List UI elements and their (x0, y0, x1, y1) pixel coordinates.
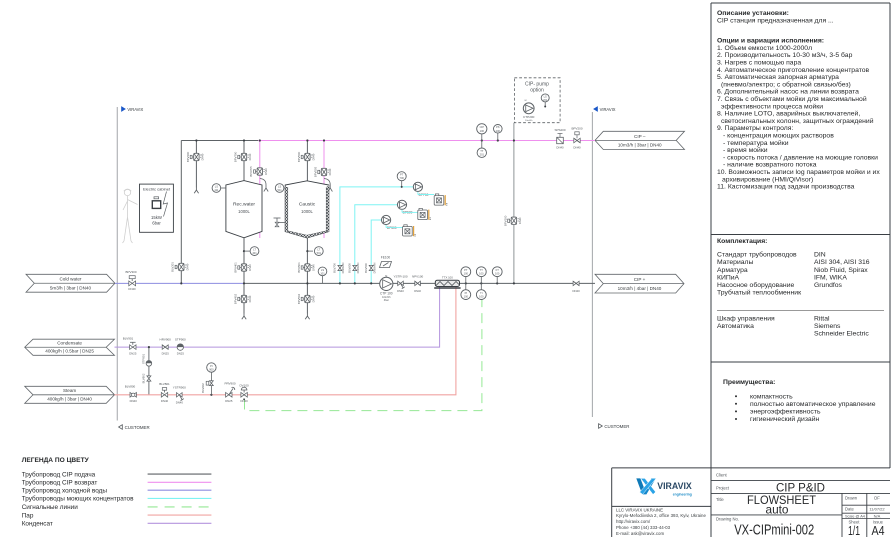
svg-text:BPV300: BPV300 (125, 270, 136, 274)
svg-text:TI: TI (480, 291, 483, 295)
svg-text:DN40: DN40 (312, 264, 316, 271)
svg-text:DN25: DN25 (129, 351, 137, 355)
svg-text:PS: PS (496, 125, 500, 129)
svg-text:SPS200: SPS200 (554, 128, 565, 132)
svg-text:Конденсат: Конденсат (22, 521, 53, 528)
svg-text:архивирование (HMI/QiVisor): архивирование (HMI/QiVisor) (722, 176, 813, 183)
svg-text:100: 100 (464, 295, 469, 299)
svg-text:8. Наличие LOTO, аварийных вык: 8. Наличие LOTO, аварийных выключателей, (717, 110, 860, 118)
svg-text:Condensate: Condensate (57, 341, 82, 346)
svg-text:DV100: DV100 (240, 384, 250, 388)
svg-text:DN40: DN40 (397, 289, 404, 293)
svg-text:ЛЕГЕНДА ПО ЦВЕТУ: ЛЕГЕНДА ПО ЦВЕТУ (22, 457, 90, 464)
svg-text:501: 501 (317, 251, 322, 255)
svg-text:BLV500: BLV500 (364, 263, 368, 273)
svg-text:Описание установки:: Описание установки: (717, 10, 789, 17)
svg-text:DN40: DN40 (186, 263, 190, 270)
svg-text:DN40: DN40 (328, 168, 332, 175)
svg-text:201: 201 (543, 98, 548, 102)
svg-text:BPV200: BPV200 (571, 126, 582, 130)
svg-text:1/1: 1/1 (848, 523, 860, 537)
svg-text:DN40: DN40 (556, 146, 564, 150)
svg-text:M: M (525, 100, 527, 102)
svg-text:Kyrylo-Mefodiivska 2, office 3: Kyrylo-Mefodiivska 2, office 393, Kyiv, … (616, 513, 706, 518)
svg-text:DN40: DN40 (248, 295, 252, 302)
svg-text:BPV501: BPV501 (297, 262, 301, 273)
svg-text:КИПиА: КИПиА (717, 274, 740, 281)
svg-text:CIP +: CIP + (634, 277, 646, 282)
svg-text:900: 900 (209, 368, 214, 372)
svg-text:Шкаф управления: Шкаф управления (717, 316, 775, 323)
svg-text:BLV600: BLV600 (347, 263, 351, 273)
svg-text:- наличие возвратного потока: - наличие возвратного потока (723, 162, 817, 169)
svg-text:HRV900: HRV900 (160, 338, 172, 342)
svg-text:11/07/22: 11/07/22 (869, 507, 885, 512)
svg-text:Преимущества:: Преимущества: (723, 379, 775, 386)
svg-text:DN8/MIN: DN8/MIN (372, 263, 376, 274)
svg-text:PRV900: PRV900 (224, 382, 235, 386)
svg-text:400kg/h | 3bar | DN40: 400kg/h | 3bar | DN40 (47, 397, 92, 402)
svg-text:Grundfos: Grundfos (814, 282, 843, 289)
svg-text:VX-CIPmini-002: VX-CIPmini-002 (734, 523, 814, 537)
svg-text:CTP 100: CTP 100 (380, 291, 393, 295)
svg-text:100: 100 (479, 295, 484, 299)
svg-text:CUSTOMER: CUSTOMER (604, 424, 629, 429)
svg-text:auto: auto (766, 502, 789, 516)
svg-text:BLV700: BLV700 (333, 263, 337, 273)
svg-text:LS: LS (215, 184, 218, 188)
svg-text:Стандарт трубопроводов: Стандарт трубопроводов (717, 251, 797, 259)
svg-text:Client: Client (716, 473, 728, 478)
svg-text:DN40: DN40 (312, 153, 316, 160)
svg-text:CIP –: CIP – (634, 134, 646, 139)
svg-text:DN40: DN40 (264, 168, 268, 175)
svg-text:CTP200: CTP200 (523, 115, 535, 119)
svg-text:DF: DF (874, 496, 880, 501)
svg-text:DN40: DN40 (312, 295, 316, 302)
svg-text:10m3/h: 10m3/h (525, 120, 533, 122)
svg-text:BLV901: BLV901 (123, 336, 134, 340)
svg-text:Опции и вариации исполнения:: Опции и вариации исполнения: (717, 38, 824, 45)
svg-text:PI: PI (210, 364, 213, 368)
svg-text:1. Объем емкости 1000-2000л: 1. Объем емкости 1000-2000л (717, 44, 812, 52)
svg-text:6. Дополнительный насос на лин: 6. Дополнительный насос на линии возврат… (717, 88, 859, 96)
svg-text:BPV505: BPV505 (313, 166, 317, 177)
svg-text:светосигнальных колонн, защитн: светосигнальных колонн, защитных огражде… (721, 117, 874, 125)
svg-text:DN40: DN40 (414, 289, 421, 293)
svg-text:Drawn: Drawn (845, 496, 858, 501)
svg-text:BPV500: BPV500 (297, 151, 301, 162)
svg-text:DN40: DN40 (518, 217, 522, 224)
svg-text:Трубопровод CIP подача: Трубопровод CIP подача (22, 470, 96, 478)
svg-text:LS: LS (321, 268, 324, 272)
svg-text:DN25: DN25 (162, 351, 170, 355)
svg-text:Schneider Electric: Schneider Electric (814, 331, 869, 338)
svg-text:BLV800: BLV800 (125, 385, 136, 389)
svg-text:3bar: 3bar (384, 299, 389, 302)
svg-text:Drawing No.: Drawing No. (716, 517, 739, 522)
svg-text:411: 411 (214, 188, 219, 192)
svg-text:LT: LT (253, 248, 256, 252)
svg-text:Cold water: Cold water (59, 277, 81, 282)
svg-text:10m3/h | 4bar | DN40: 10m3/h | 4bar | DN40 (618, 286, 662, 291)
svg-text:энергоэффективность: энергоэффективность (750, 409, 821, 416)
svg-text:DN25: DN25 (225, 399, 233, 403)
svg-text:CIP: CIP (480, 125, 485, 129)
svg-text:(пневмо/электро; с обратной св: (пневмо/электро; с обратной связью/без) (721, 80, 851, 88)
svg-text:DN40: DN40 (248, 264, 252, 271)
svg-text:Rittal: Rittal (814, 316, 830, 323)
svg-text:Steam: Steam (63, 388, 76, 393)
svg-text:VIRAVIX: VIRAVIX (600, 107, 616, 112)
svg-text:LS: LS (278, 184, 281, 188)
svg-text:DN40: DN40 (176, 400, 184, 404)
svg-text:11. Кастомизация под задачи пр: 11. Кастомизация под задачи производства (717, 184, 855, 191)
svg-text:Siemens: Siemens (814, 323, 841, 330)
svg-text:TT: TT (480, 268, 484, 272)
svg-text:Автоматика: Автоматика (717, 323, 754, 330)
svg-text:DN40: DN40 (573, 146, 581, 150)
svg-text:STP901: STP901 (142, 354, 146, 365)
svg-text:401: 401 (252, 251, 257, 255)
svg-text:Материалы: Материалы (717, 259, 754, 266)
svg-text:option: option (530, 88, 544, 94)
svg-text:9. Параметры контроля:: 9. Параметры контроля: (717, 125, 793, 132)
svg-text:BLV902: BLV902 (142, 373, 146, 383)
svg-text:http://viravix.com/: http://viravix.com/ (616, 519, 651, 524)
svg-text:A4: A4 (872, 523, 885, 537)
svg-text:DN40: DN40 (128, 287, 136, 291)
svg-text:5. Автоматическая запорная арм: 5. Автоматическая запорная арматура (717, 74, 839, 81)
svg-text:1000L: 1000L (238, 209, 250, 214)
svg-text:DIN: DIN (814, 252, 826, 259)
svg-text:IFM, WIKA: IFM, WIKA (814, 274, 847, 281)
svg-text:100: 100 (495, 272, 500, 276)
svg-text:101: 101 (320, 271, 325, 275)
svg-text:100: 100 (479, 272, 484, 276)
svg-text:5m3/h | 3bar | DN40: 5m3/h | 3bar | DN40 (50, 285, 92, 290)
svg-text:200: 200 (496, 129, 501, 133)
svg-text:10. Возможность записи log пар: 10. Возможность записи log параметров мо… (717, 168, 880, 176)
svg-text:100: 100 (464, 272, 469, 276)
svg-text:гигиенический дизайн: гигиенический дизайн (750, 415, 820, 423)
svg-text:N/A: N/A (874, 514, 881, 519)
svg-text:E-mail: ask@viravix.com: E-mail: ask@viravix.com (616, 531, 664, 536)
svg-text:100: 100 (480, 129, 485, 133)
svg-text:DN40: DN40 (248, 153, 252, 160)
svg-text:Phone +380 (44) 333-44-03: Phone +380 (44) 333-44-03 (616, 525, 671, 530)
svg-text:511: 511 (278, 188, 283, 192)
svg-text:Niob Fluid, Spirax: Niob Fluid, Spirax (814, 267, 868, 274)
svg-text:3. Нагрев с помощью пара: 3. Нагрев с помощью пара (717, 60, 801, 67)
svg-text:BPV100: BPV100 (503, 215, 507, 226)
svg-text:PT: PT (400, 173, 404, 177)
svg-text:6bar: 6bar (152, 221, 161, 226)
svg-text:BPV502: BPV502 (297, 293, 301, 304)
svg-text:VIRAVIX: VIRAVIX (127, 107, 143, 112)
svg-text:BLV301: BLV301 (171, 262, 175, 272)
svg-text:Комплектация:: Комплектация: (717, 238, 767, 245)
svg-text:YSTR900: YSTR900 (173, 385, 186, 389)
svg-text:DN8/MIN: DN8/MIN (356, 263, 360, 274)
svg-text:компактность: компактность (750, 393, 793, 400)
svg-text:NPV100: NPV100 (412, 275, 424, 279)
svg-text:LT: LT (317, 248, 320, 252)
svg-text:VIRAVIX: VIRAVIX (657, 481, 692, 491)
svg-text:Caustic: Caustic (299, 202, 316, 208)
svg-text:400kg/h | 0.5bar | DN25: 400kg/h | 0.5bar | DN25 (45, 349, 94, 354)
svg-text:PI: PI (465, 291, 468, 295)
svg-text:TT: TT (480, 149, 484, 153)
svg-text:Scale @ A4: Scale @ A4 (845, 515, 865, 519)
svg-text:- температура мойки: - температура мойки (723, 139, 789, 147)
svg-text:Насосное оборудование: Насосное оборудование (717, 281, 794, 289)
svg-text:BPV402: BPV402 (233, 293, 237, 304)
svg-text:Сигнальные линии: Сигнальные линии (22, 504, 79, 511)
svg-text:BPV300: BPV300 (186, 151, 190, 162)
svg-text:эффективности процесса мойки: эффективности процесса мойки (721, 102, 823, 110)
svg-text:Date: Date (845, 507, 855, 512)
svg-text:7. Связь с объектами мойки для: 7. Связь с объектами мойки для максималь… (717, 95, 867, 103)
svg-text:Title: Title (716, 497, 724, 502)
svg-text:Трубчатый теплообменник: Трубчатый теплообменник (717, 289, 801, 297)
svg-text:Трубопровод холодной воды: Трубопровод холодной воды (22, 487, 108, 495)
svg-text:STP900: STP900 (175, 338, 186, 342)
svg-text:BLV902: BLV902 (201, 383, 205, 393)
svg-text:DN40: DN40 (241, 399, 249, 403)
svg-text:700: 700 (400, 176, 405, 180)
svg-text:10m3/h | 3bar | DN40: 10m3/h | 3bar | DN40 (618, 143, 662, 148)
svg-text:Rec.water: Rec.water (233, 202, 255, 208)
svg-text:TTX 100: TTX 100 (442, 275, 453, 279)
svg-text:- скорость потока / давление н: - скорость потока / давление на моющие г… (723, 154, 878, 161)
svg-text:BPV705: BPV705 (249, 166, 253, 177)
svg-text:- концентрация моющих растворо: - концентрация моющих растворов (723, 133, 834, 140)
svg-text:LLC VIRAVIX UKRAINE: LLC VIRAVIX UKRAINE (616, 507, 663, 512)
svg-text:BPV700: BPV700 (233, 151, 237, 162)
svg-text:DN40: DN40 (573, 289, 581, 293)
svg-text:1000L: 1000L (301, 209, 313, 214)
svg-text:Project: Project (716, 485, 730, 490)
svg-text:DN25: DN25 (177, 351, 185, 355)
svg-text:Трубопровод CIP возврат: Трубопровод CIP возврат (22, 479, 98, 487)
svg-text:AISI 304, AISI 316: AISI 304, AISI 316 (814, 259, 870, 266)
svg-text:Electric cabinet: Electric cabinet (143, 186, 171, 191)
svg-text:DN40: DN40 (201, 153, 205, 160)
svg-text:Трубопроводы моющих концентрат: Трубопроводы моющих концентратов (22, 495, 134, 503)
svg-text:- время мойки: - время мойки (723, 146, 768, 154)
svg-text:CIP P&ID: CIP P&ID (776, 480, 825, 494)
svg-text:FE100: FE100 (381, 256, 391, 260)
svg-text:Пар: Пар (22, 512, 34, 519)
svg-text:CUSTOMER: CUSTOMER (125, 425, 150, 430)
svg-text:LS: LS (544, 94, 547, 98)
svg-text:DN8/MIN: DN8/MIN (341, 263, 345, 274)
svg-text:PT: PT (464, 268, 468, 272)
svg-text:YSTR-100: YSTR-100 (393, 275, 407, 279)
svg-text:BLV801: BLV801 (159, 382, 170, 386)
svg-text:BPV401: BPV401 (233, 262, 237, 273)
svg-text:M: M (385, 275, 387, 278)
svg-text:DN40: DN40 (161, 399, 169, 403)
svg-text:4. Автоматическое приготовлени: 4. Автоматическое приготовление концентр… (717, 67, 870, 74)
svg-text:15kW: 15kW (151, 215, 163, 220)
svg-text:Арматура: Арматура (717, 267, 748, 274)
svg-text:DN40: DN40 (130, 399, 138, 403)
svg-text:201: 201 (480, 153, 485, 157)
svg-text:полностью автоматическое управ: полностью автоматическое управление (750, 401, 876, 408)
svg-text:FT: FT (496, 268, 500, 272)
svg-text:CIP станция предназначенная дл: CIP станция предназначенная для ... (717, 17, 834, 24)
svg-text:engineering: engineering (673, 492, 692, 496)
svg-text:2. Производительность 10-30 м3: 2. Производительность 10-30 м3/ч, 3-5 ба… (717, 51, 853, 59)
